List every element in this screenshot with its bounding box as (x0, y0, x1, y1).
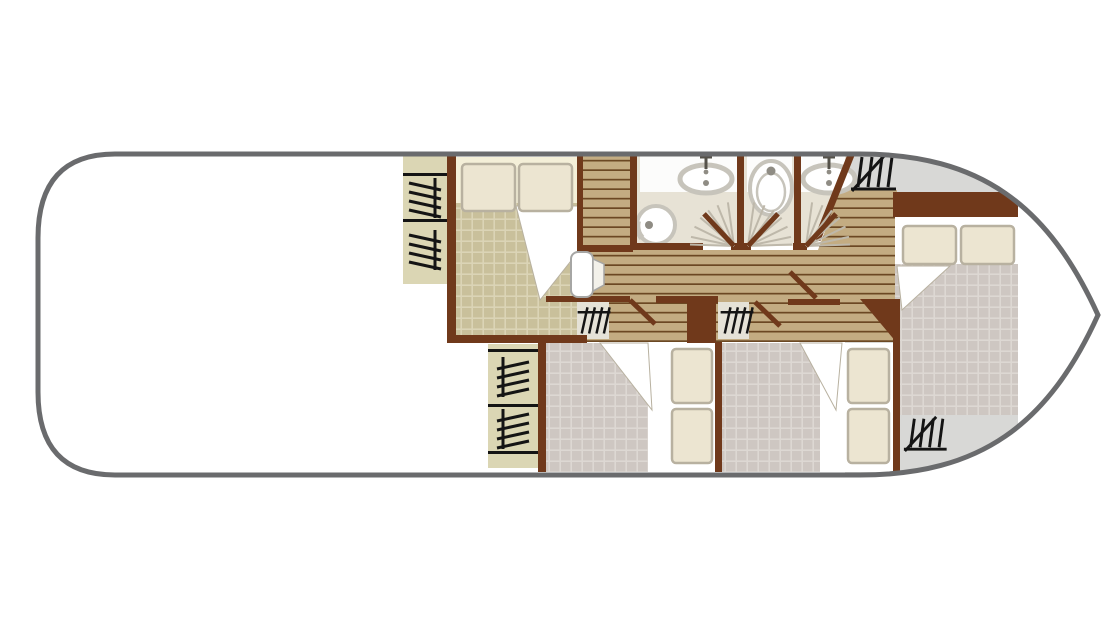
forward-wardrobe (403, 156, 450, 284)
pillow (672, 409, 712, 463)
headboard-locker (893, 192, 1018, 217)
pillow (462, 164, 515, 211)
bow-tip-floor (1018, 154, 1108, 475)
pillow (848, 349, 889, 403)
pillow (519, 164, 572, 211)
toilet-icon (750, 161, 792, 215)
vestibule-floor (581, 154, 630, 252)
floor-plan-canvas (0, 0, 1120, 640)
pillow (848, 409, 889, 463)
cabin-starboard (722, 343, 893, 472)
port-wardrobe (488, 344, 538, 468)
boat-floor-plan (0, 0, 1120, 640)
pillow (961, 226, 1014, 264)
cabin-port (546, 343, 716, 472)
forward-cabin (456, 157, 578, 335)
pillow (903, 226, 956, 264)
closet-starboard (718, 302, 753, 339)
bow-cabin (893, 192, 1018, 415)
closet-port (577, 302, 610, 339)
pillow (672, 349, 712, 403)
toilet-icon (637, 206, 675, 244)
